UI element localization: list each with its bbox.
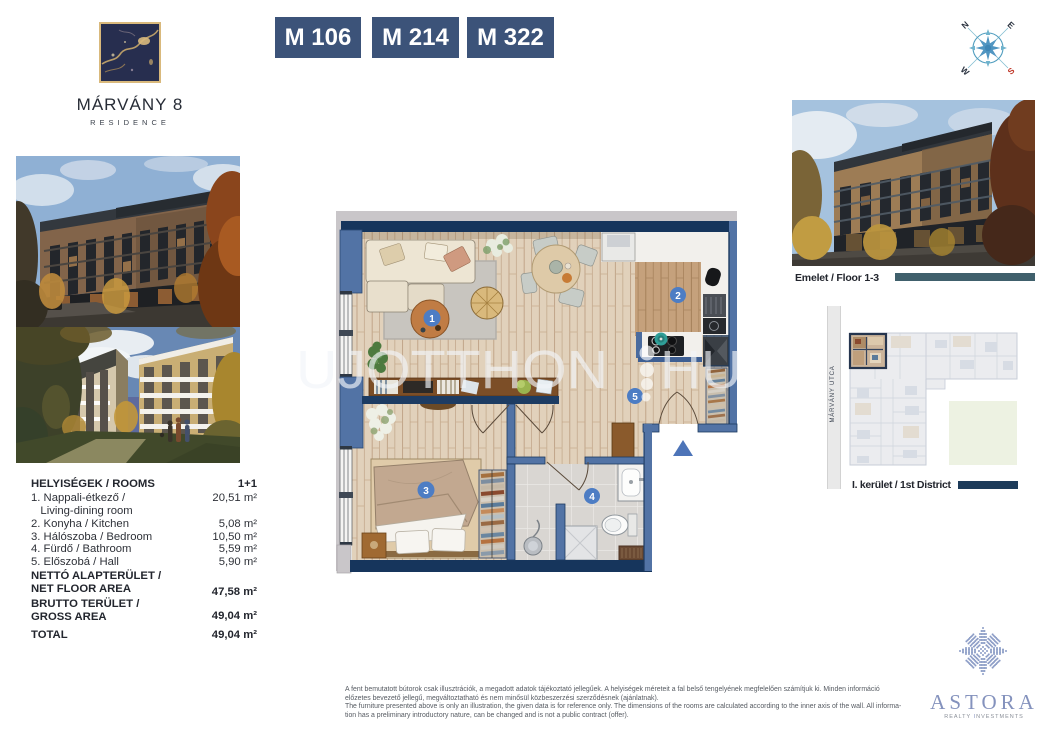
svg-text:1: 1 bbox=[429, 314, 435, 325]
svg-text:UJOTTHON: UJOTTHON bbox=[296, 340, 608, 400]
svg-text:2: 2 bbox=[675, 291, 681, 302]
svg-text:W: W bbox=[959, 65, 972, 78]
svg-text:S: S bbox=[1006, 65, 1017, 76]
svg-text:HU: HU bbox=[660, 340, 742, 400]
svg-text:5: 5 bbox=[632, 392, 638, 403]
svg-text:3: 3 bbox=[423, 486, 429, 497]
svg-text:4: 4 bbox=[589, 492, 595, 503]
